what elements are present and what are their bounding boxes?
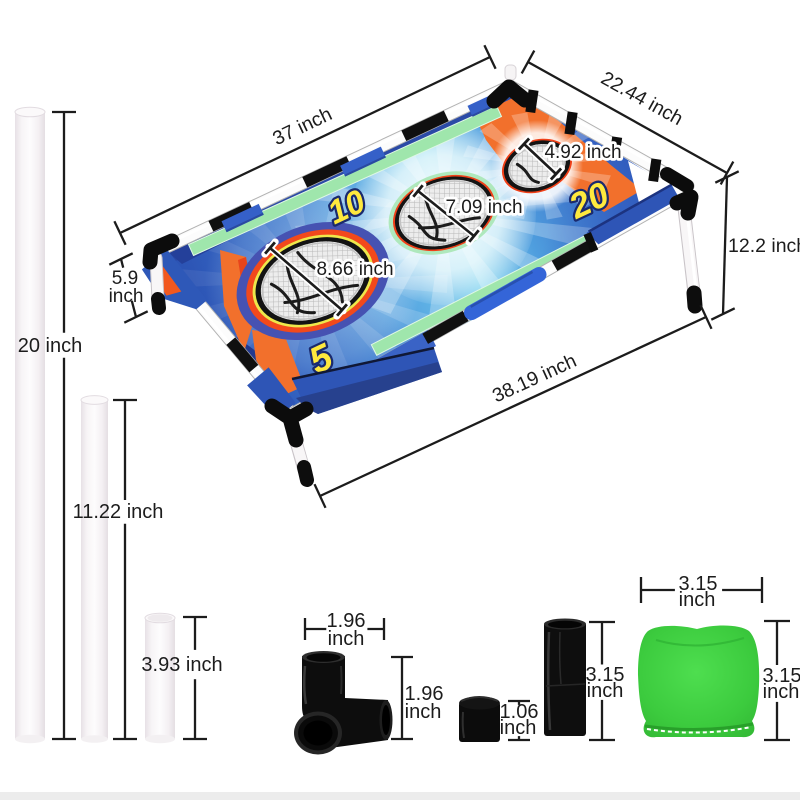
svg-text:20 inch: 20 inch: [18, 335, 83, 357]
svg-text:4.92 inch: 4.92 inch: [544, 142, 621, 163]
svg-text:inch: inch: [763, 681, 800, 703]
svg-text:3.93 inch: 3.93 inch: [141, 654, 222, 676]
svg-text:12.2 inch: 12.2 inch: [728, 235, 800, 257]
svg-text:inch: inch: [328, 628, 365, 650]
svg-text:inch: inch: [500, 717, 537, 739]
svg-text:inch: inch: [587, 680, 624, 702]
svg-text:8.66 inch: 8.66 inch: [316, 259, 393, 280]
svg-text:inch: inch: [405, 701, 442, 723]
svg-text:11.22 inch: 11.22 inch: [73, 501, 164, 523]
svg-text:inch: inch: [679, 589, 716, 611]
svg-text:7.09 inch: 7.09 inch: [445, 197, 522, 218]
svg-text:inch: inch: [109, 286, 144, 307]
